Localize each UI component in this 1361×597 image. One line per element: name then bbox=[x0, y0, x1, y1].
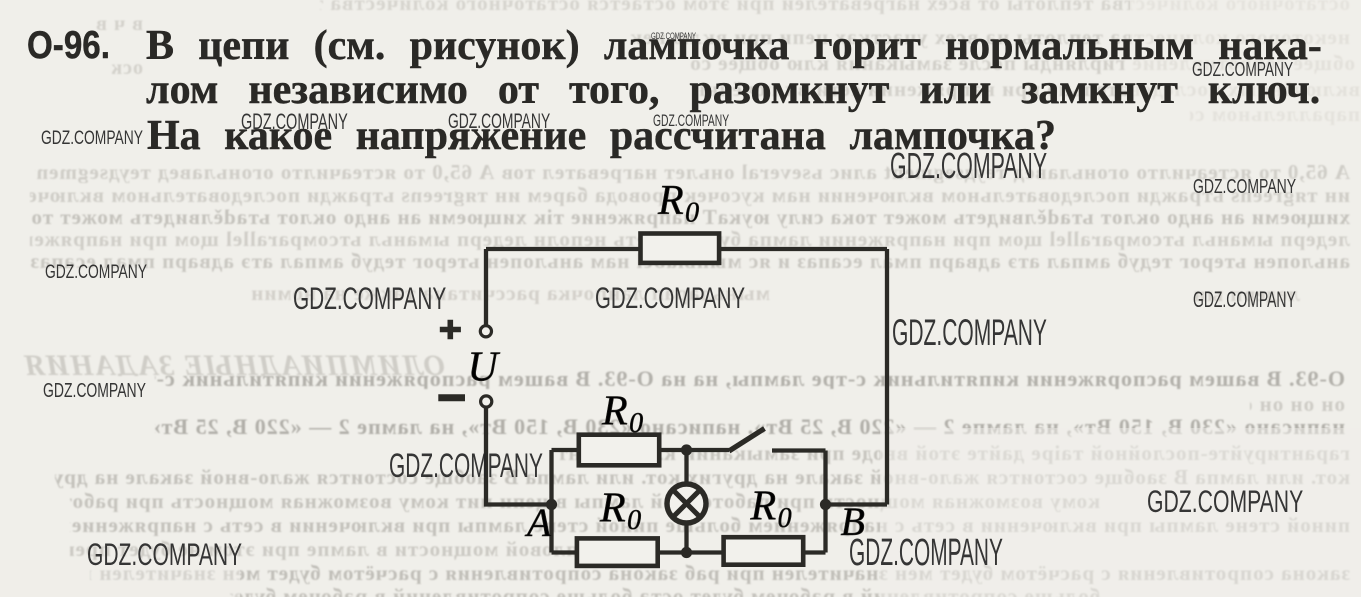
svg-text:R0: R0 bbox=[601, 389, 643, 440]
svg-text:U: U bbox=[468, 345, 501, 391]
svg-text:A: A bbox=[524, 500, 552, 545]
svg-text:R0: R0 bbox=[657, 178, 699, 229]
svg-text:R0: R0 bbox=[599, 486, 641, 537]
svg-text:R0: R0 bbox=[750, 484, 792, 535]
